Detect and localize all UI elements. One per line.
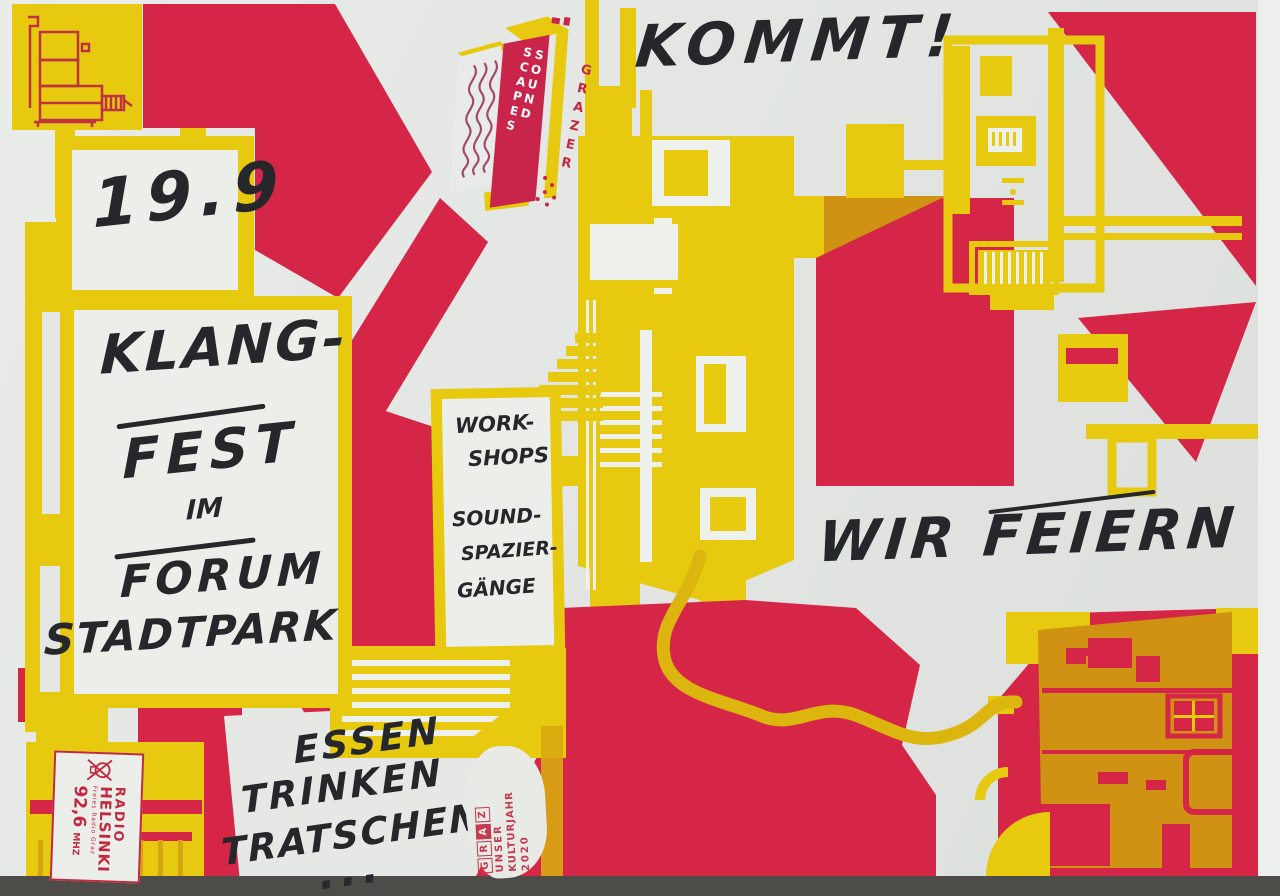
- kommt-headline: KOMMT!: [633, 6, 965, 76]
- wir-feiern-headline: WIR FEIERN: [816, 501, 1241, 572]
- graz-stamp-line4: 2020: [519, 835, 532, 871]
- workshop-line-sound: SOUND-: [452, 505, 543, 530]
- graz-letter-g: G: [477, 858, 493, 874]
- radio-stamp-freq: 92,6: [68, 785, 89, 828]
- paper-edge: [1258, 0, 1280, 876]
- bottom-right-device: [980, 608, 1278, 876]
- date-text: 19.9: [92, 152, 287, 239]
- graz-stamp-letters: GRAZ: [470, 805, 494, 874]
- graz-letter-z: Z: [475, 807, 491, 823]
- bulb-icon: [83, 758, 114, 783]
- soundscapes-logo: SOUND SCAPES GRAZER: [421, 0, 630, 236]
- workshop-line-gaenge: GÄNGE: [456, 575, 536, 600]
- title-line-im: IM: [186, 494, 223, 524]
- food-line-dots: ...: [315, 846, 386, 896]
- graz-letter-r: R: [477, 841, 493, 857]
- table-strip: [0, 876, 1280, 896]
- workshop-line-work: WORK-: [455, 412, 536, 437]
- radio-stamp-unit: MHZ: [69, 832, 80, 855]
- graz-stamp-line2: UNSER: [493, 824, 507, 873]
- graz-letter-a: A: [476, 824, 492, 840]
- graz-stamp-line3: KULTURJAHR: [504, 791, 519, 872]
- graz-kulturjahr-stamp: GRAZ UNSER KULTURJAHR 2020: [463, 744, 550, 880]
- workshop-line-shops: SHOPS: [468, 445, 550, 470]
- radio-helsinki-stamp: RADIO HELSINKI Freies Radio Graz 92,6 MH…: [50, 750, 144, 883]
- right-red-shapes: [816, 12, 1256, 486]
- klangfest-poster: 19.9 KLANG- FEST IM FORUM STADTPARK WORK…: [0, 0, 1280, 896]
